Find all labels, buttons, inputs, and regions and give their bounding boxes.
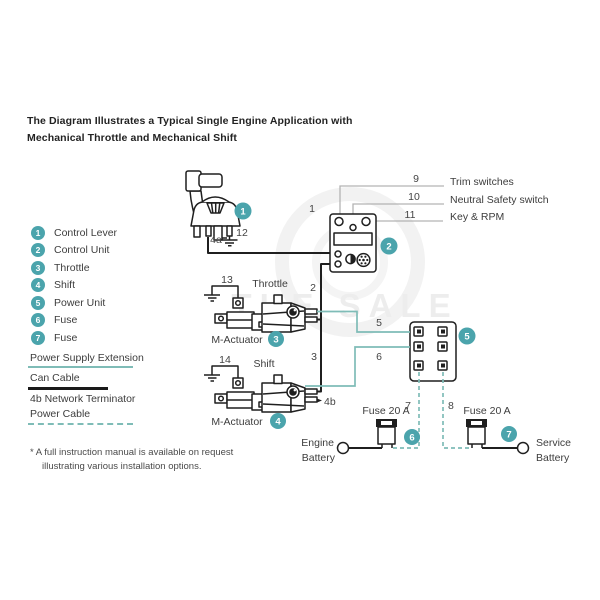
legend-item-control-unit: 2Control Unit [31, 242, 117, 260]
footnote-line-1: * A full instruction manual is available… [30, 446, 233, 460]
wire-label-3: 3 [311, 351, 317, 363]
footnote: * A full instruction manual is available… [30, 446, 233, 474]
line-legend-power-supply-extension: Power Supply Extension [30, 352, 144, 364]
legend-item-power-unit: 5Power Unit [31, 294, 117, 312]
label-4b: 4b [324, 396, 336, 408]
fuse-rating-engine: Fuse 20 A [362, 405, 409, 417]
legend-badge-2: 2 [31, 243, 45, 257]
fuse-engine [376, 419, 397, 448]
legend-item-fuse-6: 6Fuse [31, 312, 117, 330]
control-lever [186, 171, 240, 240]
engine-battery-terminal [338, 443, 349, 454]
line-legend-network-terminator: 4b Network Terminator [30, 393, 135, 405]
legend-item-shift: 4Shift [31, 277, 117, 295]
lever-base-top [202, 197, 229, 202]
ground-12 [222, 236, 238, 246]
badge-shift-actuator: 4 [270, 413, 286, 429]
badge-control-unit: 2 [381, 238, 398, 255]
m-actuator-label-throttle: M-Actuator [211, 334, 263, 346]
svg-text:1: 1 [240, 207, 246, 218]
legend-badge-4: 4 [31, 278, 45, 292]
svg-text:7: 7 [506, 430, 511, 441]
callout-label-neutral: Neutral Safety switch [450, 194, 549, 206]
legend-badge-5: 5 [31, 296, 45, 310]
legend-item-fuse-7: 7Fuse [31, 329, 117, 347]
svg-text:4: 4 [275, 417, 281, 428]
wire-label-1: 1 [309, 203, 315, 215]
fuse-service [466, 419, 487, 448]
lever-knob [199, 174, 222, 187]
line-legend-can-cable: Can Cable [30, 372, 80, 384]
legend: 1Control Lever 2Control Unit 3Throttle 4… [31, 224, 117, 347]
fuse-rating-service: Fuse 20 A [463, 405, 510, 417]
callout-num-10: 10 [408, 191, 420, 203]
badge-control-lever: 1 [235, 203, 252, 220]
wire-label-6: 6 [376, 351, 382, 363]
title-line-1: The Diagram Illustrates a Typical Single… [27, 113, 353, 130]
terminator-4b [317, 399, 322, 403]
m-actuator-label-shift: M-Actuator [211, 416, 263, 428]
diagram-page: THE SALE [0, 0, 600, 600]
label-4a: 4a [210, 234, 222, 246]
legend-badge-1: 1 [31, 226, 45, 240]
page-title: The Diagram Illustrates a Typical Single… [27, 113, 353, 147]
wire-label-14: 14 [219, 354, 231, 366]
service-battery-label-2: Battery [536, 452, 570, 464]
footnote-line-2: illustrating various installation option… [42, 460, 233, 474]
wire-label-5: 5 [376, 317, 382, 329]
wire-label-12: 12 [236, 227, 248, 239]
badge-power-unit: 5 [459, 328, 476, 345]
badge-fuse-service: 7 [501, 426, 517, 442]
wire-label-8: 8 [448, 400, 454, 412]
line-legend-power-cable: Power Cable [30, 408, 90, 420]
legend-item-control-lever: 1Control Lever [31, 224, 117, 242]
service-battery-terminal [518, 443, 529, 454]
legend-badge-6: 6 [31, 313, 45, 327]
svg-text:2: 2 [386, 242, 391, 253]
power-unit [410, 322, 456, 381]
service-battery-label-1: Service [536, 437, 571, 449]
wire-label-13: 13 [221, 274, 233, 286]
legend-badge-7: 7 [31, 331, 45, 345]
callout-num-9: 9 [413, 173, 419, 185]
shift-label: Shift [253, 358, 274, 370]
svg-text:5: 5 [464, 332, 470, 343]
engine-battery-label-2: Battery [302, 452, 336, 464]
svg-text:3: 3 [273, 335, 278, 346]
badge-throttle-actuator: 3 [268, 331, 284, 347]
callout-num-11: 11 [405, 209, 416, 221]
callout-label-trim: Trim switches [450, 176, 514, 188]
wire-label-2: 2 [310, 282, 316, 294]
legend-item-throttle: 3Throttle [31, 259, 117, 277]
callout-label-key: Key & RPM [450, 211, 504, 223]
throttle-label: Throttle [252, 278, 288, 290]
line-sample-black-solid [28, 387, 108, 390]
svg-text:6: 6 [409, 433, 414, 444]
engine-battery-label-1: Engine [301, 437, 334, 449]
badge-fuse-engine: 6 [404, 429, 420, 445]
legend-badge-3: 3 [31, 261, 45, 275]
shift-actuator [204, 366, 317, 412]
line-sample-teal-solid [28, 366, 133, 368]
callout-labels: 9 Trim switches 10 Neutral Safety switch… [405, 173, 549, 223]
line-sample-teal-dashed [28, 423, 133, 425]
title-line-2: Mechanical Throttle and Mechanical Shift [27, 130, 353, 147]
